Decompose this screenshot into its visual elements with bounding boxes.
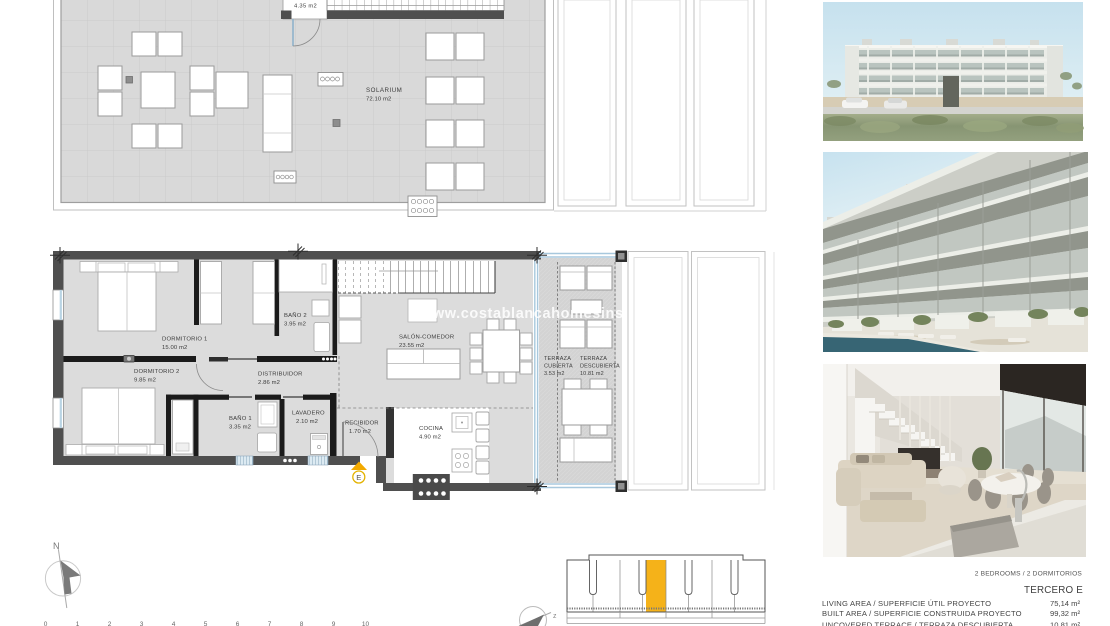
svg-text:UNCOVERED TERRACE / TERRAZA DE: UNCOVERED TERRACE / TERRAZA DESCUBIERTA bbox=[822, 621, 1014, 626]
svg-text:99,32 m²: 99,32 m² bbox=[1050, 609, 1080, 618]
svg-text:TERRAZA: TERRAZA bbox=[544, 356, 571, 362]
svg-text:10.81 m2: 10.81 m2 bbox=[580, 371, 604, 377]
svg-text:7: 7 bbox=[268, 621, 272, 626]
svg-text:DESCUBIERTA: DESCUBIERTA bbox=[580, 364, 620, 370]
svg-text:1: 1 bbox=[76, 621, 80, 626]
svg-text:3: 3 bbox=[140, 621, 144, 626]
svg-text:75,14 m²: 75,14 m² bbox=[1050, 599, 1080, 608]
svg-text:DORMITORIO 1: DORMITORIO 1 bbox=[162, 337, 208, 343]
svg-text:TERRAZA: TERRAZA bbox=[580, 356, 607, 362]
svg-text:6: 6 bbox=[236, 621, 240, 626]
svg-text:LAVADERO: LAVADERO bbox=[292, 411, 325, 417]
svg-text:BUILT AREA / SUPERFICIE CONSTR: BUILT AREA / SUPERFICIE CONSTRUIDA PROYE… bbox=[822, 609, 1022, 618]
svg-text:z: z bbox=[553, 613, 557, 620]
svg-text:SALÓN-COMEDOR: SALÓN-COMEDOR bbox=[399, 334, 454, 341]
svg-text:5: 5 bbox=[204, 621, 208, 626]
svg-text:15.00 m2: 15.00 m2 bbox=[162, 345, 187, 351]
svg-text:TERCERO E: TERCERO E bbox=[1024, 585, 1083, 596]
svg-text:4: 4 bbox=[172, 621, 176, 626]
svg-text:10,81 m²: 10,81 m² bbox=[1050, 621, 1080, 626]
svg-text:SOLARIUM: SOLARIUM bbox=[366, 87, 402, 94]
svg-text:2.86 m2: 2.86 m2 bbox=[258, 380, 280, 386]
svg-text:3.95 m2: 3.95 m2 bbox=[284, 322, 306, 328]
svg-text:4.35 m2: 4.35 m2 bbox=[294, 4, 317, 10]
svg-text:DISTRIBUIDOR: DISTRIBUIDOR bbox=[258, 372, 303, 378]
svg-text:DORMITORIO 2: DORMITORIO 2 bbox=[134, 369, 180, 375]
svg-text:2.10 m2: 2.10 m2 bbox=[296, 419, 318, 425]
svg-text:BAÑO 1: BAÑO 1 bbox=[229, 415, 252, 422]
svg-text:2 BEDROOMS / 2 DORMITORIOS: 2 BEDROOMS / 2 DORMITORIOS bbox=[975, 571, 1083, 578]
svg-text:BAÑO 2: BAÑO 2 bbox=[284, 312, 307, 319]
svg-text:www.costablancahomesins: www.costablancahomesins bbox=[420, 306, 624, 322]
svg-text:COCINA: COCINA bbox=[419, 426, 443, 432]
svg-text:0: 0 bbox=[44, 621, 48, 626]
svg-text:9.85 m2: 9.85 m2 bbox=[134, 378, 156, 384]
svg-text:RECIBIDOR: RECIBIDOR bbox=[345, 421, 379, 427]
svg-text:E: E bbox=[356, 473, 361, 482]
svg-text:4.90 m2: 4.90 m2 bbox=[419, 435, 441, 441]
svg-text:72.10 m2: 72.10 m2 bbox=[366, 97, 391, 103]
svg-text:2: 2 bbox=[108, 621, 112, 626]
svg-text:10: 10 bbox=[362, 621, 370, 626]
svg-text:8: 8 bbox=[300, 621, 304, 626]
svg-text:3.35 m2: 3.35 m2 bbox=[229, 425, 251, 431]
svg-text:3.53 m2: 3.53 m2 bbox=[544, 371, 565, 377]
svg-text:LIVING AREA / SUPERFICIE ÚTIL: LIVING AREA / SUPERFICIE ÚTIL PROYECTO bbox=[822, 599, 991, 608]
svg-text:CUBIERTA: CUBIERTA bbox=[544, 364, 573, 370]
svg-text:9: 9 bbox=[332, 621, 336, 626]
svg-text:23.55 m2: 23.55 m2 bbox=[399, 343, 424, 349]
